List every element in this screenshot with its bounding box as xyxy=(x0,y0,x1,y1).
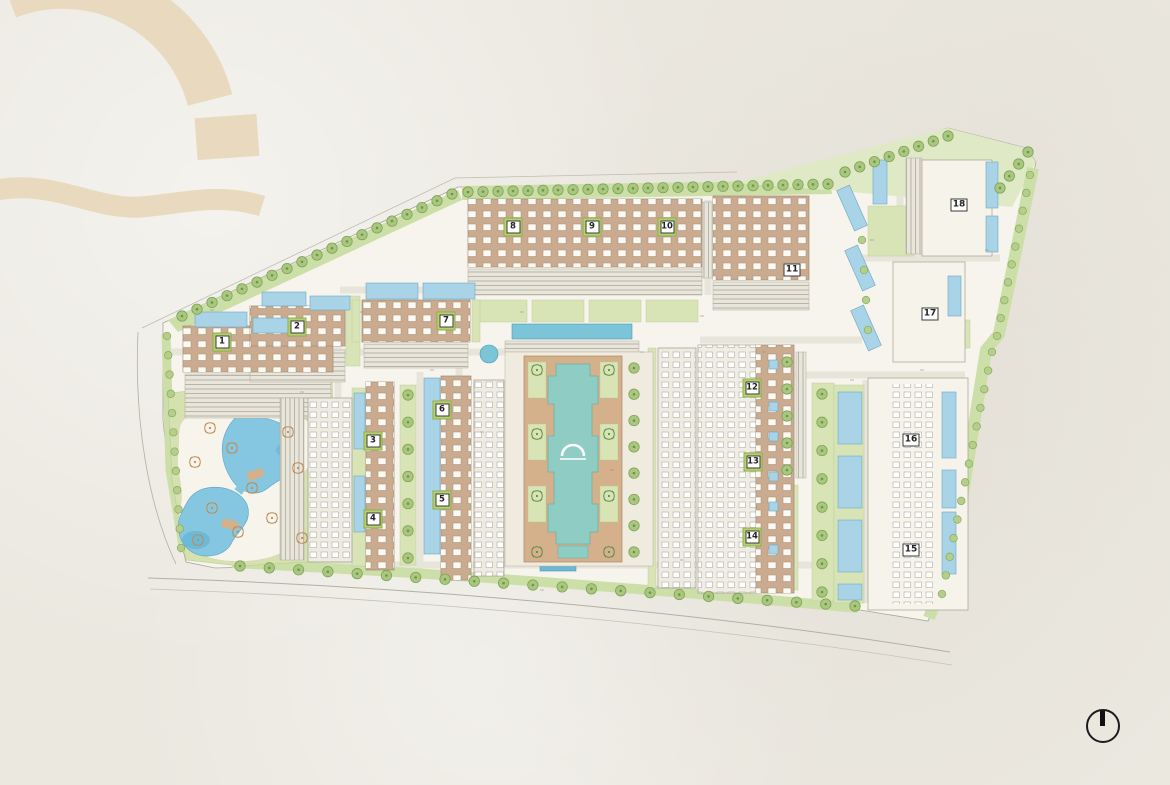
building-number: 5 xyxy=(435,494,449,507)
building-marker-3[interactable]: 3 xyxy=(364,432,383,451)
building-number: 14 xyxy=(745,531,759,544)
building-marker-10[interactable]: 10 xyxy=(658,218,677,237)
building-markers: 123456789101112131415161718 xyxy=(0,0,1170,785)
building-marker-6[interactable]: 6 xyxy=(433,401,452,420)
building-number: 1 xyxy=(215,336,229,349)
building-marker-16[interactable]: 16 xyxy=(903,434,920,447)
building-number: 17 xyxy=(922,308,939,321)
building-number: 16 xyxy=(903,434,920,447)
building-number: 2 xyxy=(290,321,304,334)
building-number: 8 xyxy=(506,221,520,234)
building-marker-12[interactable]: 12 xyxy=(743,379,762,398)
marker-lawn-pad: 8 xyxy=(504,218,523,237)
building-marker-9[interactable]: 9 xyxy=(583,218,602,237)
building-marker-18[interactable]: 18 xyxy=(951,199,968,212)
building-marker-5[interactable]: 5 xyxy=(433,491,452,510)
building-marker-7[interactable]: 7 xyxy=(437,312,456,331)
building-marker-17[interactable]: 17 xyxy=(922,308,939,321)
marker-lawn-pad: 14 xyxy=(743,528,762,547)
building-number: 6 xyxy=(435,404,449,417)
building-marker-1[interactable]: 1 xyxy=(213,333,232,352)
building-number: 13 xyxy=(746,456,760,469)
building-marker-13[interactable]: 13 xyxy=(744,453,763,472)
marker-lawn-pad: 3 xyxy=(364,432,383,451)
site-plan-page: 123456789101112131415161718 xyxy=(0,0,1170,785)
building-number: 12 xyxy=(745,382,759,395)
marker-lawn-pad: 6 xyxy=(433,401,452,420)
marker-lawn-pad: 10 xyxy=(658,218,677,237)
building-marker-14[interactable]: 14 xyxy=(743,528,762,547)
building-number: 3 xyxy=(366,435,380,448)
building-number: 11 xyxy=(784,264,801,277)
marker-lawn-pad: 7 xyxy=(437,312,456,331)
building-number: 7 xyxy=(439,315,453,328)
building-number: 9 xyxy=(585,221,599,234)
building-number: 10 xyxy=(660,221,674,234)
marker-lawn-pad: 2 xyxy=(288,318,307,337)
marker-lawn-pad: 5 xyxy=(433,491,452,510)
building-number: 15 xyxy=(903,544,920,557)
building-number: 4 xyxy=(366,513,380,526)
north-indicator-icon xyxy=(1086,709,1120,743)
building-marker-4[interactable]: 4 xyxy=(364,510,383,529)
building-marker-8[interactable]: 8 xyxy=(504,218,523,237)
north-needle xyxy=(1100,711,1105,727)
marker-lawn-pad: 1 xyxy=(213,333,232,352)
marker-lawn-pad: 9 xyxy=(583,218,602,237)
building-marker-11[interactable]: 11 xyxy=(784,264,801,277)
building-marker-15[interactable]: 15 xyxy=(903,544,920,557)
marker-lawn-pad: 13 xyxy=(744,453,763,472)
marker-lawn-pad: 4 xyxy=(364,510,383,529)
marker-lawn-pad: 12 xyxy=(743,379,762,398)
building-number: 18 xyxy=(951,199,968,212)
building-marker-2[interactable]: 2 xyxy=(288,318,307,337)
